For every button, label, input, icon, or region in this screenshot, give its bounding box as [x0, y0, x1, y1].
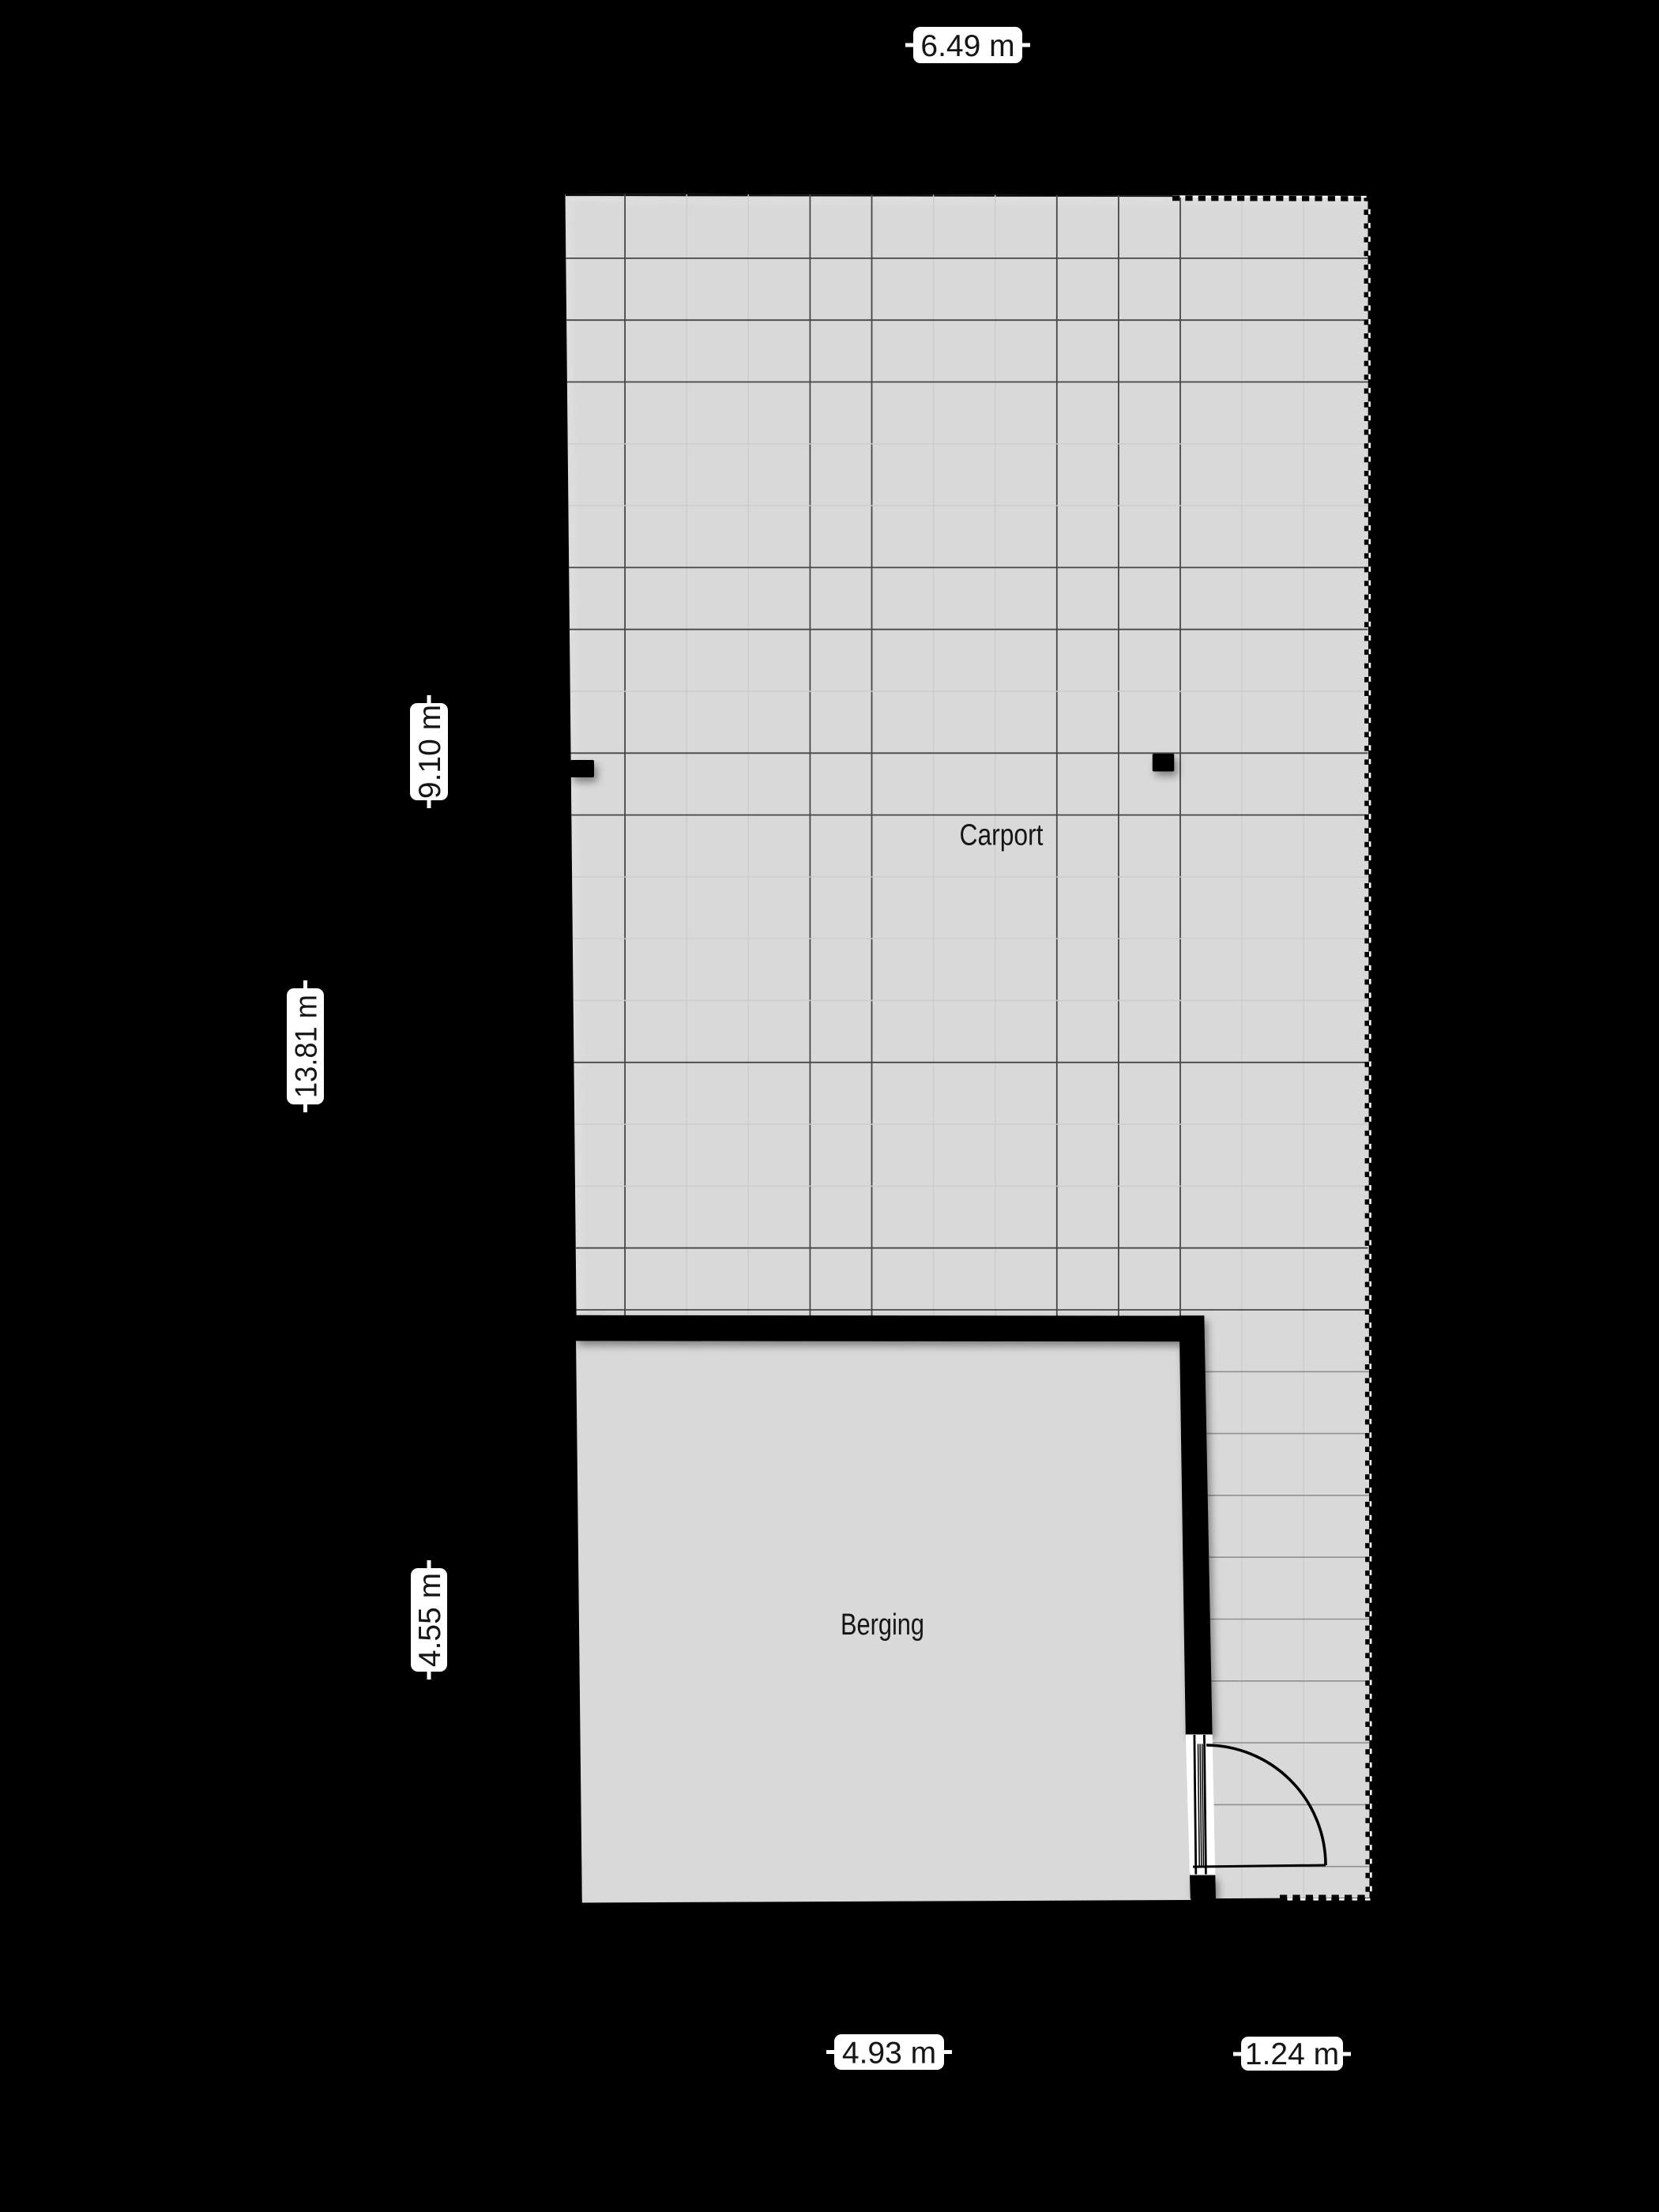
svg-text:Berging: Berging — [841, 1608, 924, 1642]
svg-text:13.81 m: 13.81 m — [290, 995, 324, 1098]
svg-text:6.49 m: 6.49 m — [920, 29, 1014, 63]
svg-text:4.93 m: 4.93 m — [842, 2037, 936, 2071]
svg-text:4.55 m: 4.55 m — [413, 1573, 447, 1667]
svg-text:Carport: Carport — [960, 819, 1044, 852]
svg-text:9.10 m: 9.10 m — [413, 705, 447, 799]
svg-text:1.24 m: 1.24 m — [1245, 2037, 1339, 2071]
